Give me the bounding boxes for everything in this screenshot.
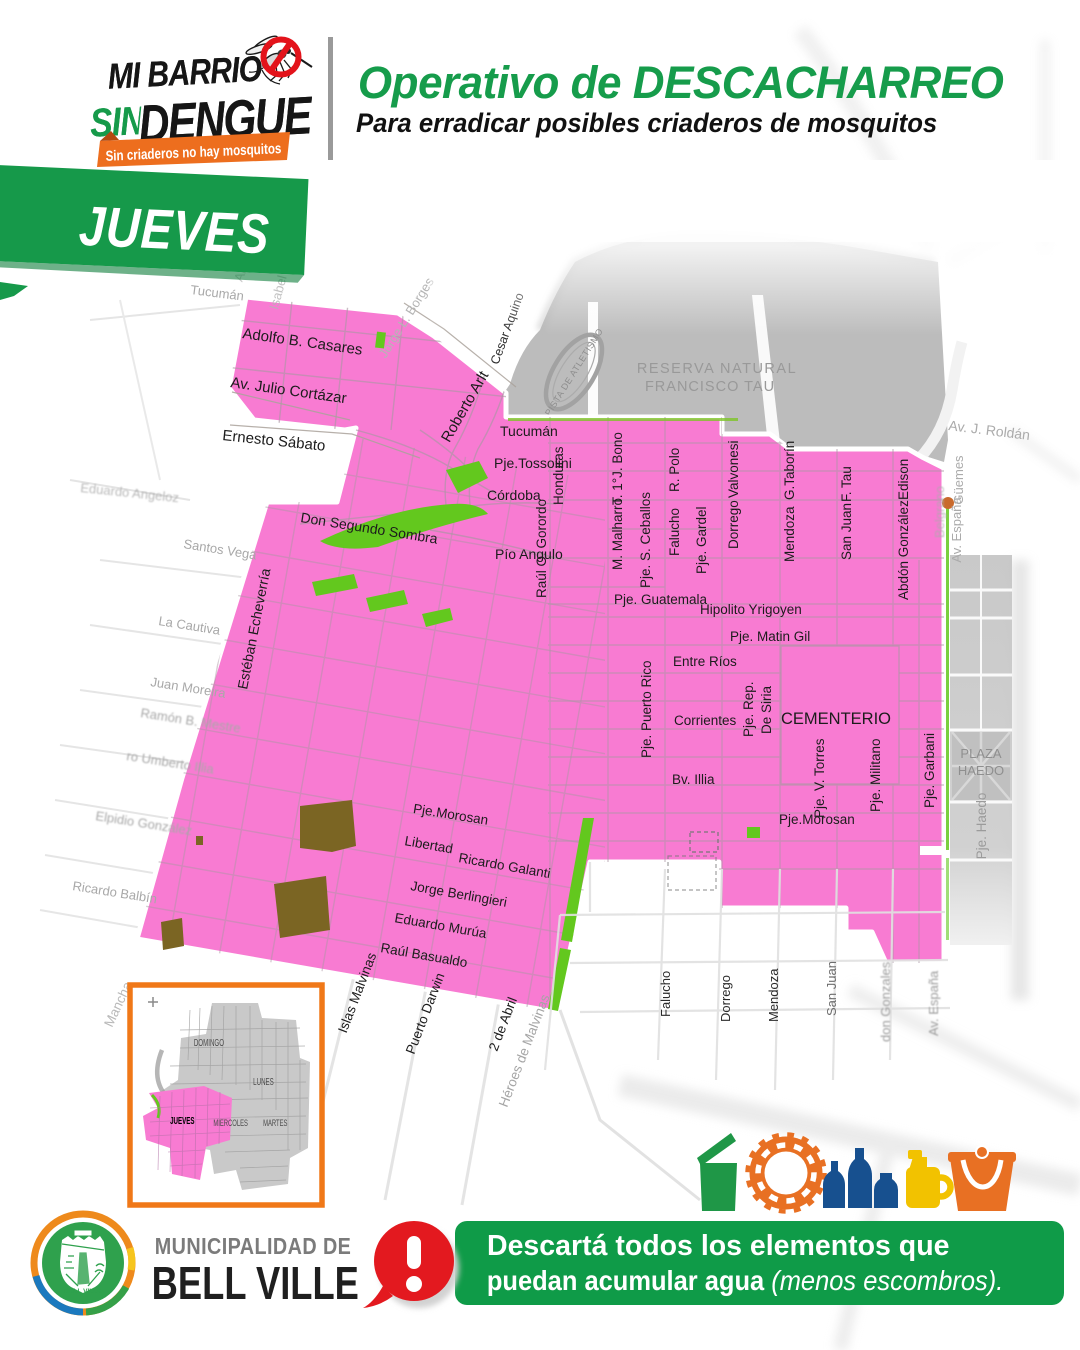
- svg-text:Pío Angulo: Pío Angulo: [495, 546, 563, 562]
- svg-text:Pje.Morosan: Pje.Morosan: [779, 812, 855, 827]
- svg-text:T. 1°J. Bono: T. 1°J. Bono: [610, 432, 625, 505]
- svg-text:Av. J. Roldán: Av. J. Roldán: [948, 417, 1031, 443]
- svg-text:DOMINGO: DOMINGO: [194, 1036, 225, 1048]
- svg-text:Av. España: Av. España: [926, 970, 941, 1036]
- svg-text:Descartá todos los elementos q: Descartá todos los elementos que: [487, 1230, 949, 1262]
- svg-text:Bv. Illia: Bv. Illia: [672, 772, 715, 787]
- svg-text:Raúl O. Gorordo: Raúl O. Gorordo: [534, 499, 549, 598]
- svg-text:Valvonesi: Valvonesi: [726, 440, 741, 498]
- svg-text:Pje. Puerto Rico: Pje. Puerto Rico: [639, 660, 654, 758]
- svg-text:Para erradicar posibles criade: Para erradicar posibles criaderos de mos…: [356, 108, 937, 138]
- svg-text:Ricardo Balbín: Ricardo Balbín: [72, 878, 159, 906]
- svg-text:Edison: Edison: [896, 459, 911, 500]
- svg-text:RESERVA NATURAL: RESERVA NATURAL: [637, 361, 797, 377]
- svg-text:R. Polo: R. Polo: [667, 448, 682, 492]
- svg-text:Pje. Garbani: Pje. Garbani: [922, 733, 937, 808]
- svg-text:2 de Abril: 2 de Abril: [486, 995, 520, 1053]
- svg-text:Güemes: Güemes: [951, 455, 966, 505]
- svg-text:De Siria: De Siria: [759, 685, 774, 734]
- svg-text:MARTES: MARTES: [263, 1118, 287, 1129]
- svg-text:BELL VILLE: BELL VILLE: [152, 1257, 359, 1309]
- svg-text:Hipolito Yrigoyen: Hipolito Yrigoyen: [700, 602, 802, 617]
- svg-text:Corrientes: Corrientes: [674, 713, 737, 728]
- svg-text:Pje. Haedo: Pje. Haedo: [974, 793, 989, 860]
- svg-text:MUNICIPALIDAD DE: MUNICIPALIDAD DE: [155, 1234, 352, 1260]
- svg-text:MIERCOLES: MIERCOLES: [213, 1118, 248, 1129]
- svg-text:Tucumán: Tucumán: [190, 282, 245, 303]
- svg-text:FRANCISCO TAU: FRANCISCO TAU: [645, 379, 775, 395]
- svg-text:Honduras: Honduras: [551, 446, 566, 505]
- svg-text:Av. España: Av. España: [949, 497, 964, 563]
- svg-text:Tucumán: Tucumán: [500, 423, 558, 439]
- svg-text:Pje. Matin Gil: Pje. Matin Gil: [730, 629, 810, 644]
- svg-text:BELL VILLE: BELL VILLE: [64, 1288, 102, 1295]
- svg-text:Mendoza: Mendoza: [782, 506, 797, 562]
- svg-text:HAEDO: HAEDO: [958, 763, 1004, 778]
- svg-text:Pje. Rep.: Pje. Rep.: [741, 681, 756, 737]
- svg-text:Mendoza: Mendoza: [766, 968, 781, 1022]
- svg-text:Pje. Guatemala: Pje. Guatemala: [614, 592, 708, 607]
- svg-text:La Cautiva: La Cautiva: [158, 613, 222, 638]
- svg-text:don Gonzales: don Gonzales: [878, 961, 893, 1042]
- svg-text:Operativo de DESCACHARREO: Operativo de DESCACHARREO: [358, 59, 1003, 109]
- svg-text:Pje. S. Ceballos: Pje. S. Ceballos: [638, 492, 653, 588]
- svg-text:Abdón González: Abdón González: [896, 500, 911, 600]
- svg-text:JUEVES: JUEVES: [170, 1114, 195, 1126]
- svg-text:San Juan: San Juan: [839, 503, 854, 560]
- svg-text:F. Tau: F. Tau: [839, 466, 854, 502]
- svg-text:JUEVES: JUEVES: [78, 194, 271, 265]
- svg-text:M. Malharro: M. Malharro: [610, 498, 625, 570]
- svg-text:Falucho: Falucho: [658, 971, 673, 1017]
- svg-text:Córdoba: Córdoba: [487, 487, 541, 503]
- svg-text:puedan acumular agua (menos es: puedan acumular agua (menos escombros).: [487, 1265, 1003, 1296]
- svg-text:Pje. V. Torres: Pje. V. Torres: [812, 738, 827, 818]
- svg-text:Belgrano: Belgrano: [932, 486, 947, 538]
- svg-text:Dorrego: Dorrego: [726, 500, 741, 549]
- svg-text:Entre Ríos: Entre Ríos: [673, 654, 737, 669]
- svg-text:LUNES: LUNES: [253, 1075, 274, 1087]
- svg-text:Falucho: Falucho: [667, 508, 682, 556]
- svg-text:CEMENTERIO: CEMENTERIO: [781, 710, 891, 728]
- svg-text:Dorrego: Dorrego: [718, 975, 733, 1022]
- svg-text:G.Taborín: G.Taborín: [782, 441, 797, 500]
- svg-text:Santos Vega: Santos Vega: [183, 536, 259, 562]
- svg-text:Pje. Gardel: Pje. Gardel: [694, 506, 709, 574]
- svg-text:Eduardo Angeloz: Eduardo Angeloz: [80, 480, 180, 505]
- svg-text:PLAZA: PLAZA: [960, 746, 1002, 761]
- svg-text:Pje. Militano: Pje. Militano: [868, 738, 883, 812]
- svg-text:San Juan: San Juan: [824, 961, 839, 1016]
